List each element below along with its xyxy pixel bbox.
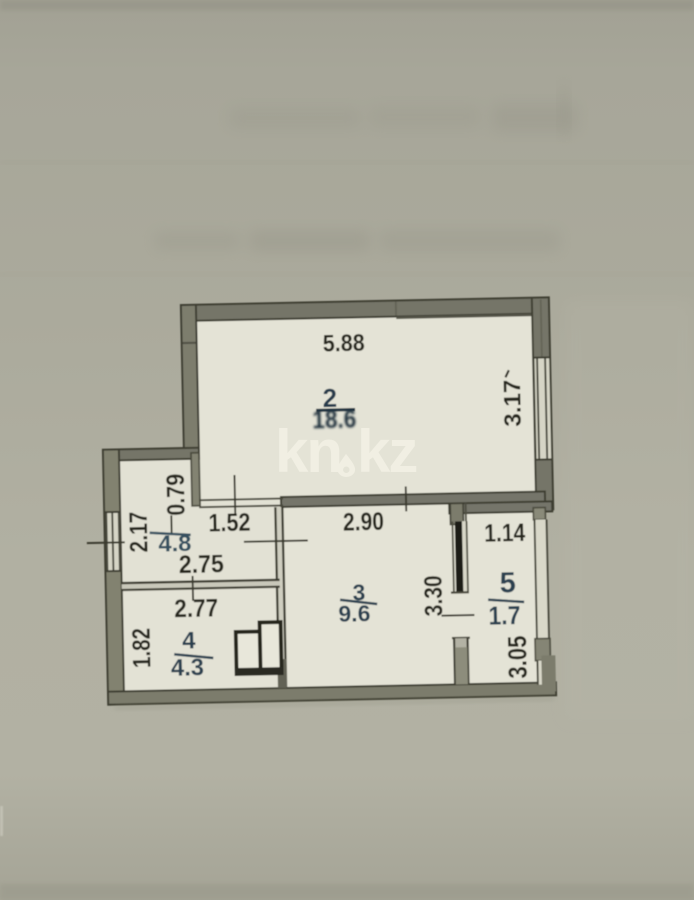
svg-text:2.77: 2.77	[174, 594, 219, 623]
svg-text:5: 5	[499, 567, 516, 599]
svg-text:1.82: 1.82	[128, 628, 157, 669]
svg-text:0.79: 0.79	[162, 473, 191, 516]
svg-text:kz: kz	[357, 418, 416, 485]
svg-text:1.14: 1.14	[484, 519, 526, 548]
svg-text:4: 4	[182, 627, 197, 654]
svg-text:4.8: 4.8	[158, 530, 192, 557]
svg-text:3.30: 3.30	[420, 575, 449, 617]
svg-text:3.17: 3.17	[499, 379, 527, 427]
svg-text:kn: kn	[275, 418, 341, 485]
svg-text:1.52: 1.52	[208, 509, 251, 538]
svg-text:2.90: 2.90	[343, 508, 385, 537]
svg-text:5.88: 5.88	[322, 330, 365, 358]
svg-text:2.17: 2.17	[125, 511, 154, 553]
svg-text:3.05: 3.05	[502, 635, 533, 679]
svg-text:4.3: 4.3	[171, 654, 205, 682]
svg-text:9.6: 9.6	[338, 600, 371, 627]
svg-text:1.7: 1.7	[488, 600, 521, 631]
